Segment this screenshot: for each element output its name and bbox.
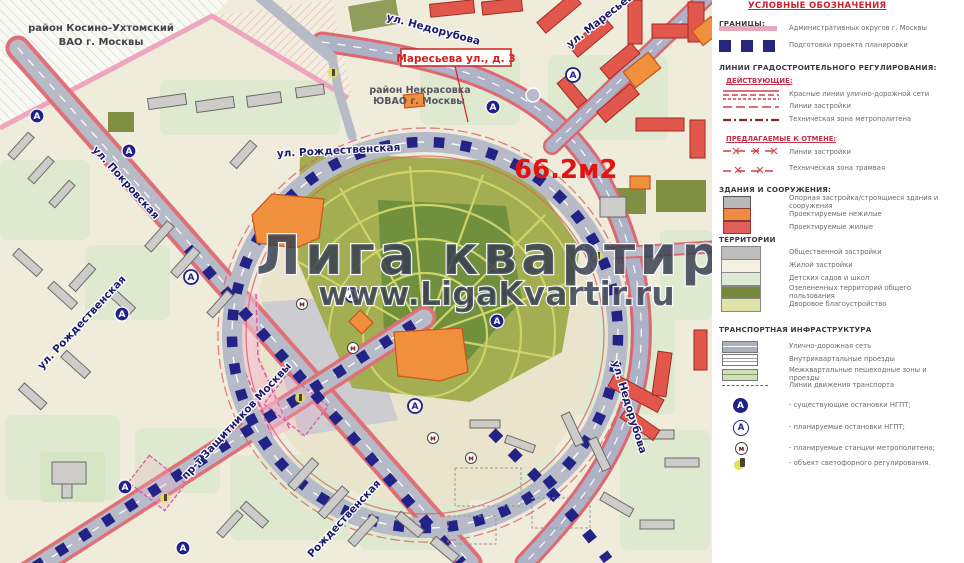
area-value-label: 66.2м2 <box>514 155 618 185</box>
district-label: район Косино-Ухтомский <box>28 23 174 34</box>
metro-icon: м <box>468 455 474 463</box>
legend-heading-territories: ТЕРРИТОРИИ <box>719 235 776 244</box>
watermark-url: www.LigaKvartir.ru <box>318 274 675 313</box>
bus-stop-icon: А <box>122 483 129 493</box>
district-label: ВАО г. Москвы <box>59 37 144 48</box>
bus-stop-planned-icon: А <box>412 402 419 412</box>
legend-item: А - планируемые остановки НГПТ; <box>719 420 905 436</box>
planning-map-screen: А А А А А А А А А А А м м м м Маресьева … <box>0 0 964 563</box>
street-network-swatch <box>722 341 758 353</box>
building-lines-swatch <box>721 103 781 111</box>
project-boundary-swatch <box>719 40 775 52</box>
legend-subheading-active: ДЕЙСТВУЮЩИЕ: <box>726 77 792 85</box>
cancel-building-lines-swatch <box>721 147 781 159</box>
legend-item: Техническая зона метрополитена <box>719 116 911 124</box>
bus-stop-icon: А <box>119 310 126 320</box>
legend-item: Подготовки проекта планировки <box>719 40 908 52</box>
watermark: Лига квартир www.LigaKvartir.ru <box>256 224 712 313</box>
bus-stop-icon: А <box>494 317 501 327</box>
existing-stop-icon: А <box>733 398 748 413</box>
legend-item: Административных округов г. Москвы <box>719 25 927 33</box>
district-label: ЮВАО г. Москвы <box>373 96 465 107</box>
legend-item: Линии движения транспорта <box>719 382 894 390</box>
bus-stop-icon: А <box>34 112 41 122</box>
bus-stop-icon: А <box>490 103 497 113</box>
bus-stop-planned-icon: А <box>570 71 577 81</box>
inner-driveways-swatch <box>722 354 758 366</box>
metro-icon: м <box>350 345 356 353</box>
planned-residential-swatch <box>723 221 751 234</box>
metro-zone-swatch <box>721 116 781 124</box>
legend-item: Проектируемые жилые <box>719 221 873 234</box>
metro-icon: м <box>299 301 305 309</box>
legend-item: Линии застройки <box>719 103 851 111</box>
legend-item: Красные линии улично-дорожной сети <box>719 89 929 101</box>
callout-text: Маресьева ул., д. 3 <box>396 53 515 65</box>
pedestrian-zones-swatch <box>722 369 758 381</box>
map-svg[interactable]: А А А А А А А А А А А м м м м Маресьева … <box>0 0 712 563</box>
legend-item: Техническая зона трамвая <box>719 163 885 175</box>
legend-item: м - планируемые станции метрополитена; <box>719 442 935 455</box>
metro-icon: м <box>430 435 436 443</box>
public-territory-swatch <box>721 246 761 260</box>
legend-heading-lines: ЛИНИИ ГРАДОСТРОИТЕЛЬНОГО РЕГУЛИРОВАНИЯ: <box>719 63 937 72</box>
legend-item: А - существующие остановки НГПТ; <box>719 398 911 413</box>
kindergarten-territory-swatch <box>721 272 761 286</box>
planned-metro-icon: м <box>735 442 748 455</box>
legend-item: Жилой застройки <box>719 259 853 273</box>
legend-item: Улично-дорожная сеть <box>719 341 871 353</box>
legend-item: Линии застройки <box>719 147 851 159</box>
legend-heading-buildings: ЗДАНИЯ И СООРУЖЕНИЯ: <box>719 185 831 194</box>
red-lines-swatch <box>721 89 781 101</box>
legend-item: Проектируемые нежилые <box>719 208 882 221</box>
residential-territory-swatch <box>721 259 761 273</box>
legend-item: Внутриквартальные проезды <box>719 354 895 366</box>
map-canvas[interactable]: А А А А А А А А А А А м м м м Маресьева … <box>0 0 712 563</box>
legend-subheading-cancel: ПРЕДЛАГАЕМЫЕ К ОТМЕНЕ: <box>726 135 836 143</box>
traffic-light-icon <box>734 458 748 470</box>
planned-stop-icon: А <box>733 420 749 436</box>
legend-item: Общественной застройки <box>719 246 882 260</box>
bus-stop-icon: А <box>180 544 187 554</box>
planned-nonresidential-swatch <box>723 208 751 221</box>
district-label: район Некрасовка <box>369 85 470 96</box>
legend-panel: УСЛОВНЫЕ ОБОЗНАЧЕНИЯ ГРАНИЦЫ: Администра… <box>712 0 964 563</box>
legend-heading-transport: ТРАНСПОРТНАЯ ИНФРАСТРУКТУРА <box>719 325 871 334</box>
admin-boundary-swatch <box>719 26 777 31</box>
bus-stop-planned-icon: А <box>188 273 195 283</box>
legend-title: УСЛОВНЫЕ ОБОЗНАЧЕНИЯ <box>748 1 886 11</box>
yard-territory-swatch <box>721 298 761 312</box>
legend-item: - объект светофорного регулирования. <box>719 458 931 470</box>
legend-item: Дворовое благоустройство <box>719 298 886 312</box>
bus-stop-icon: А <box>126 147 133 157</box>
cancel-tram-zone-swatch <box>721 163 781 175</box>
transport-lines-swatch <box>722 385 768 386</box>
